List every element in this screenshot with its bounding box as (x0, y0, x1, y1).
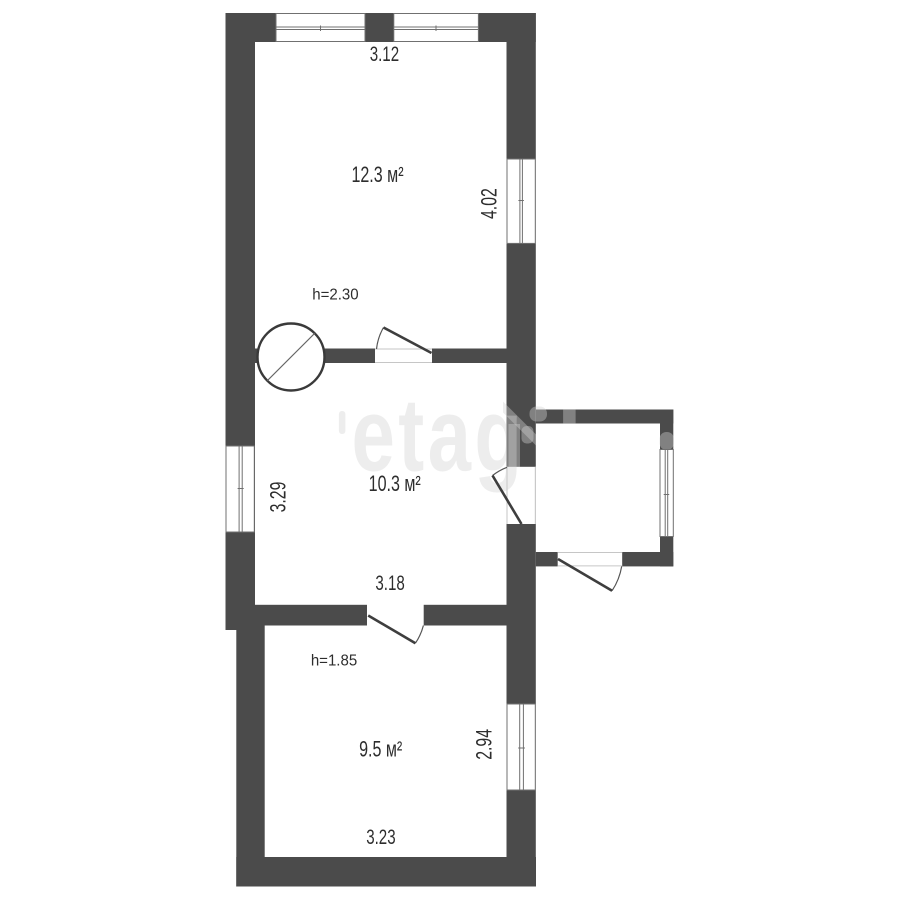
svg-text:3.23: 3.23 (366, 824, 395, 848)
svg-text:10.3 м²: 10.3 м² (369, 473, 422, 497)
svg-text:9.5 м²: 9.5 м² (359, 738, 403, 762)
svg-text:2.94: 2.94 (473, 729, 497, 760)
svg-text:3.29: 3.29 (267, 482, 291, 513)
svg-text:h=1.85: h=1.85 (311, 652, 357, 670)
svg-text:h=2.30: h=2.30 (312, 286, 359, 304)
svg-text:4.02: 4.02 (478, 188, 502, 219)
svg-text:12.3 м²: 12.3 м² (351, 164, 404, 188)
svg-text:3.18: 3.18 (375, 570, 404, 594)
svg-text:3.12: 3.12 (370, 41, 399, 65)
